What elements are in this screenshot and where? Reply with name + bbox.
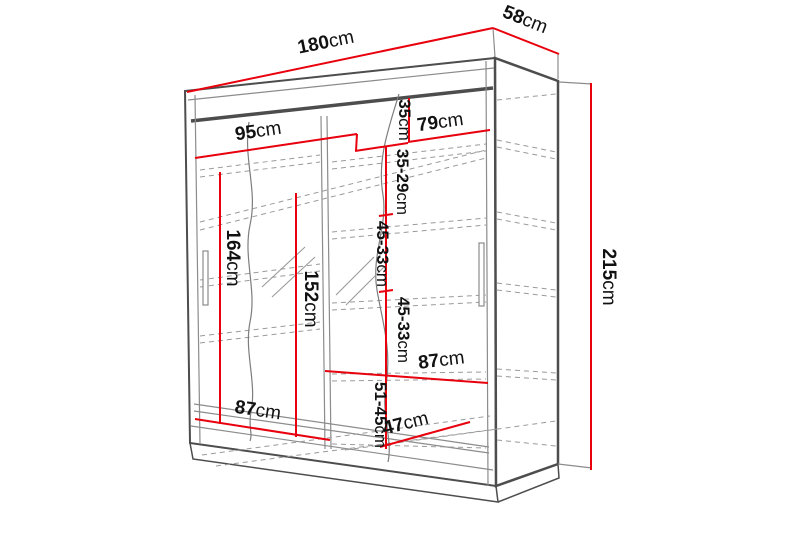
dim-label-35-29: 35-29cm — [393, 149, 412, 215]
dim-label-79: 79cm — [416, 109, 465, 136]
dim-label-35: 35cm — [395, 99, 414, 141]
dim-label-152: 152cm — [300, 270, 321, 327]
top-panel-edge — [188, 68, 494, 100]
dimension-labels: 180cm 58cm 215cm 95cm 79cm 35cm 35-29cm … — [222, 2, 619, 448]
left-door-handle — [203, 251, 208, 305]
wardrobe-plinth-front — [190, 443, 498, 502]
left-stile-inner-edge — [195, 95, 200, 444]
dim-label-95: 95cm — [234, 118, 283, 146]
dim-label-height-215: 215cm — [598, 248, 619, 305]
dim-label-45-33-b: 45-33cm — [394, 297, 413, 363]
dim-label-87-right: 87cm — [417, 347, 466, 374]
dimension-extension-ticks — [493, 28, 592, 468]
dim-line-depth-58 — [493, 28, 559, 54]
sliding-door-divider — [321, 116, 331, 449]
wardrobe-dimension-diagram: 180cm 58cm 215cm 95cm 79cm 35cm 35-29cm … — [0, 0, 800, 533]
wardrobe-side-face — [495, 58, 558, 486]
dim-label-87-left: 87cm — [233, 397, 282, 425]
top-shelf-depth-lines — [200, 150, 486, 230]
dim-label-164: 164cm — [222, 229, 243, 286]
mirror-squiggle-left — [248, 122, 253, 441]
right-door-handle — [479, 243, 484, 306]
side-face-depth-lines — [497, 94, 556, 446]
dim-label-45-33-a: 45-33cm — [373, 221, 392, 287]
right-stile-inner-edge — [486, 61, 488, 486]
diagram-canvas: 180cm 58cm 215cm 95cm 79cm 35cm 35-29cm … — [0, 0, 800, 533]
dim-label-width-180: 180cm — [296, 27, 356, 59]
